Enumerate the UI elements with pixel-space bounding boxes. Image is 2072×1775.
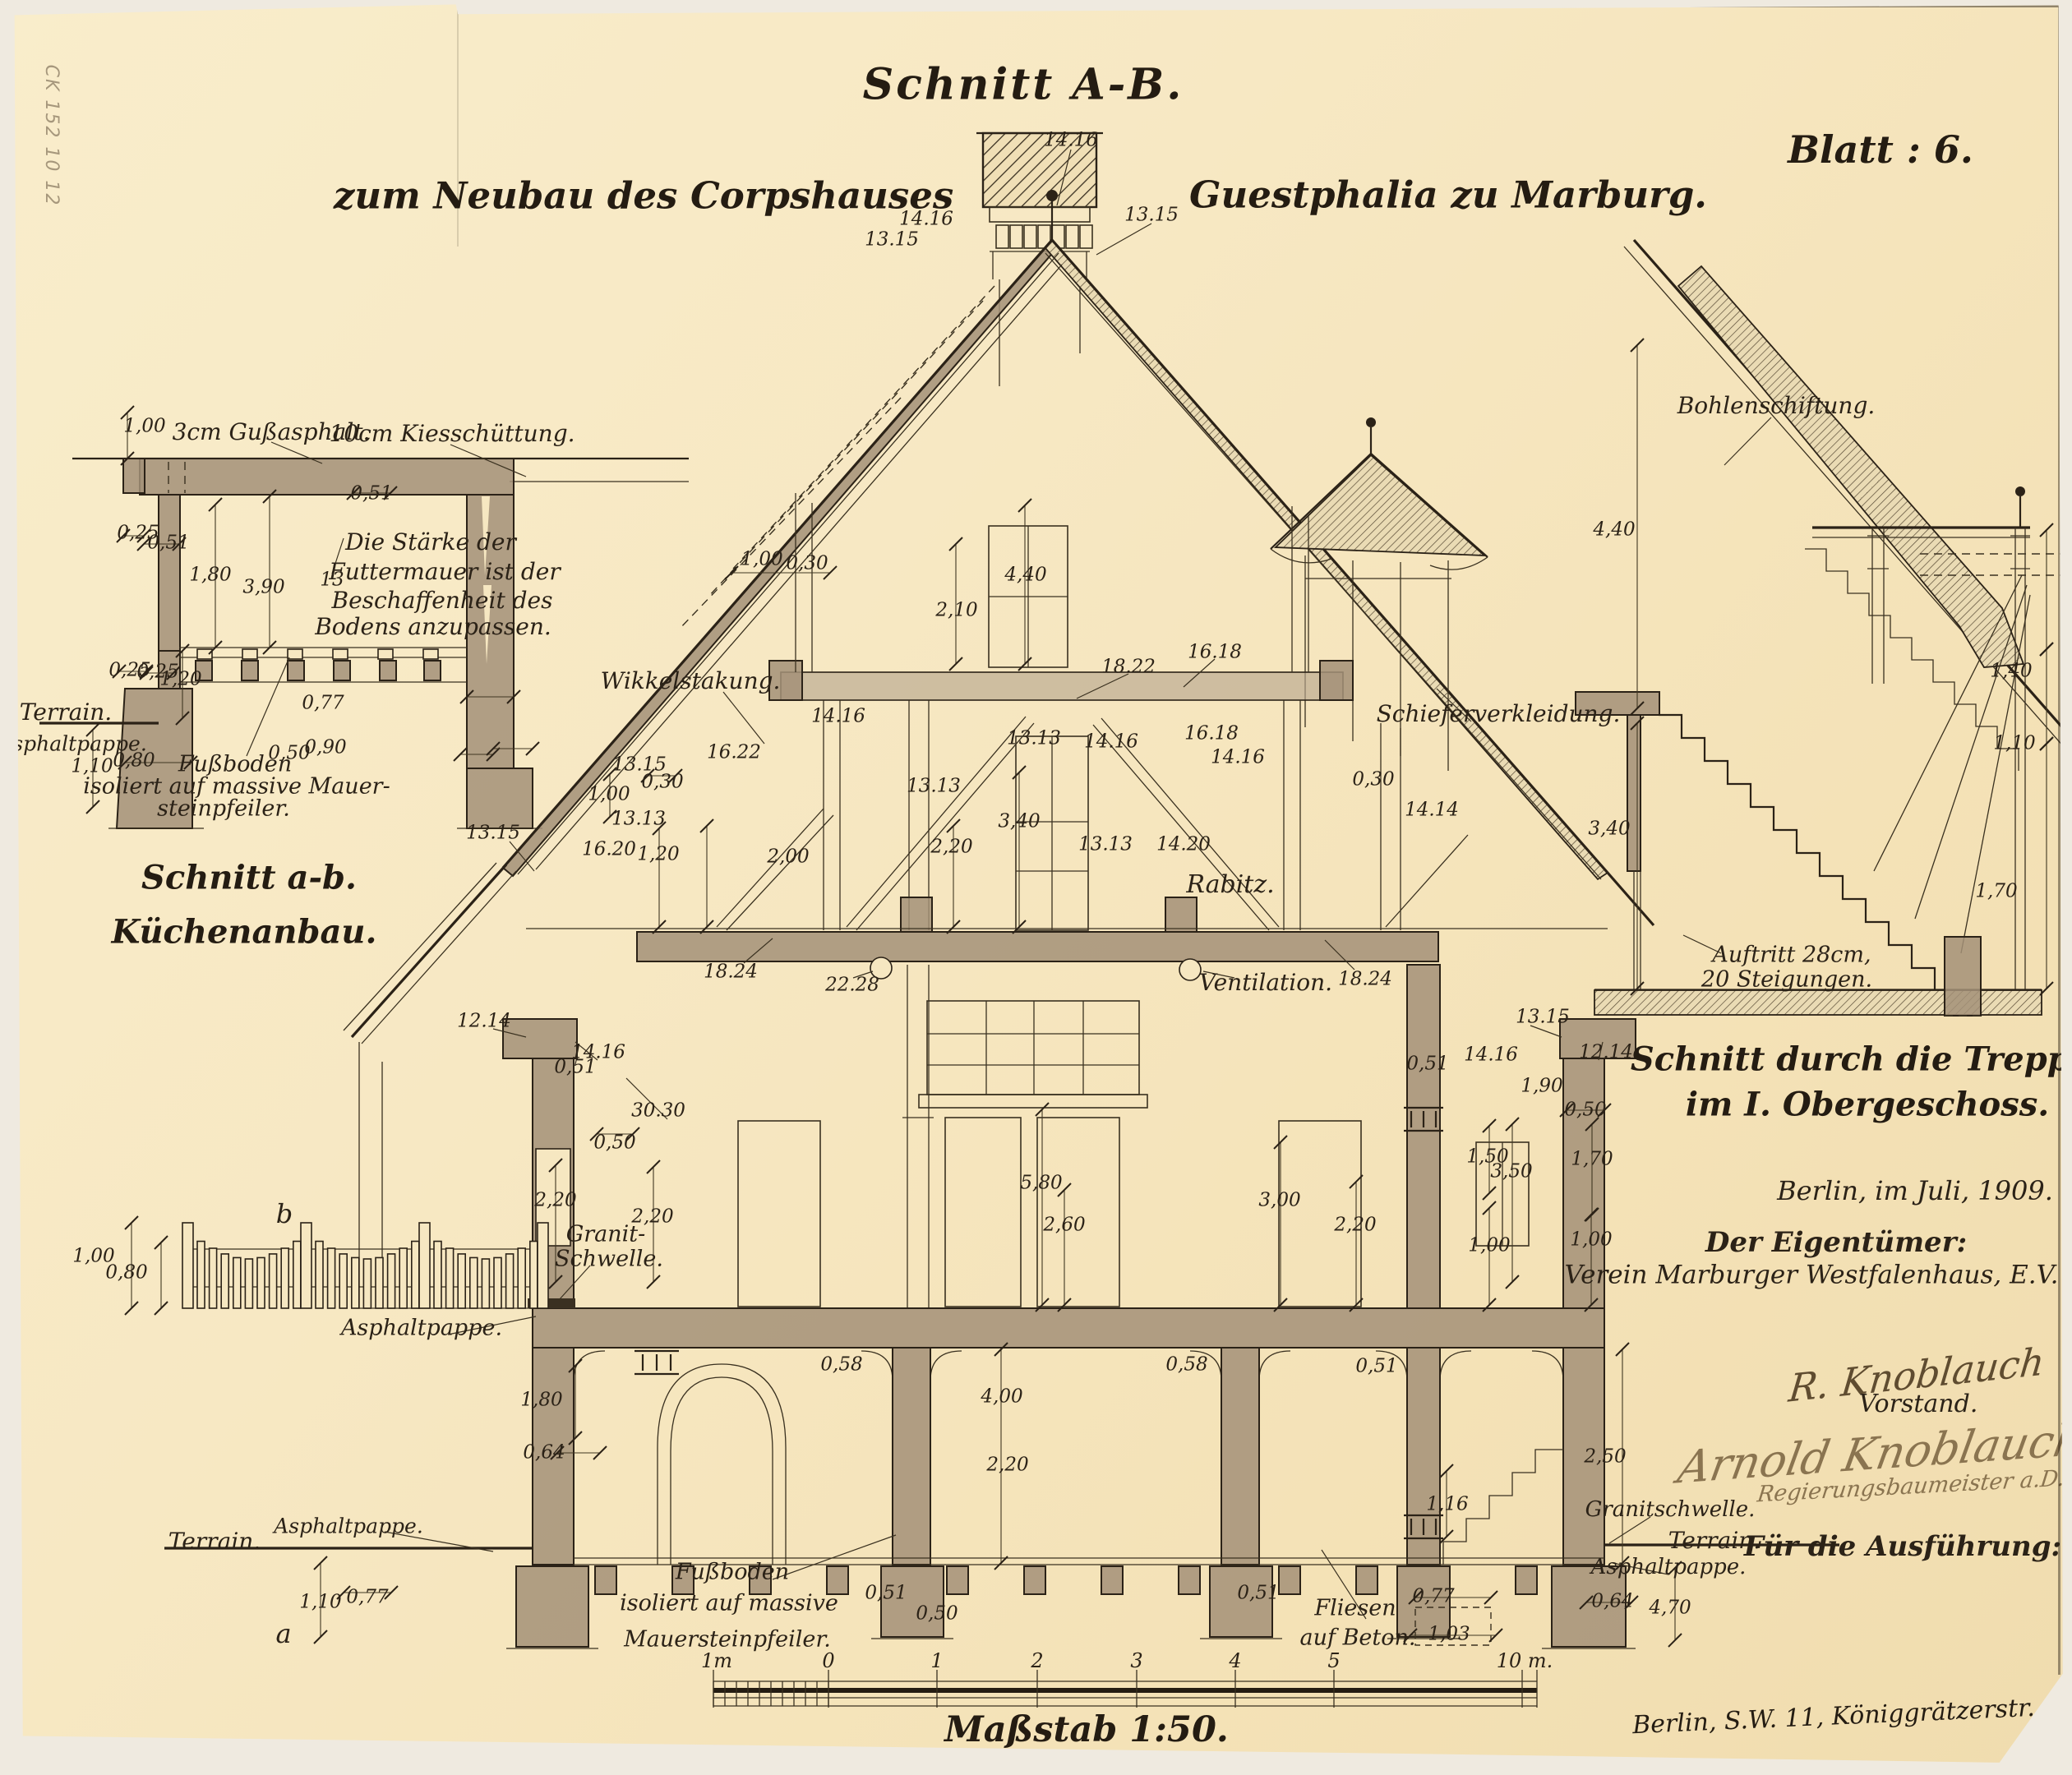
attic-floor [503,929,1636,1058]
cellar-arch [658,1364,786,1565]
main-section-drawing [164,133,1839,1648]
leader-lines [247,150,1771,1619]
ventilation-duct-right [1179,959,1201,980]
basement-stairs [1443,1450,1563,1565]
paper-crease [457,8,459,247]
paper-edge-right [2058,7,2060,1675]
main-floor [533,965,1604,1308]
attic-framing [717,493,1468,932]
bay-turret [1271,417,1488,771]
paper-edge-top [460,5,2059,7]
ventilation-duct-left [870,957,892,979]
scale-bar [713,1670,1537,1708]
roof [344,190,1654,1044]
architectural-drawing [0,0,2072,1775]
stair-flight [1659,715,1935,990]
stair-section-drawing [1576,240,2072,1016]
garden-fence [182,1223,548,1308]
drawing-sheet: Schnitt A-B. zum Neubau des Corpshauses … [0,0,2072,1775]
